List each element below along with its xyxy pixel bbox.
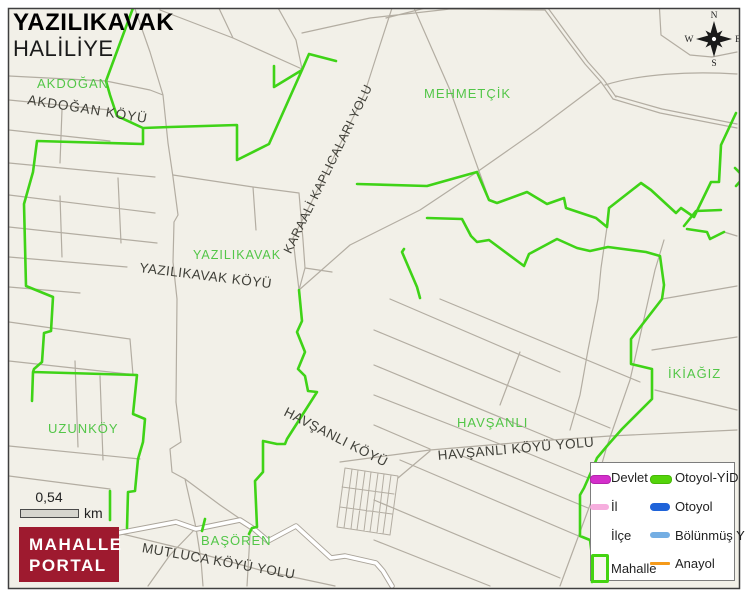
compass-north-label: N (711, 11, 718, 21)
legend-swatch-devlet (590, 475, 611, 484)
legend-label-il: İl (611, 499, 618, 514)
map-export-view: AKDOĞAN AKDOĞAN KÖYÜ MEHMETÇİK KARAALİ K… (0, 0, 748, 598)
legend-swatch-otoyol (650, 503, 670, 511)
scale-unit: km (84, 505, 103, 521)
area-label-ikiagiz: İKİAĞIZ (668, 366, 721, 381)
legend-label-devlet: Devlet (611, 470, 648, 485)
logo-line2: PORTAL (29, 555, 119, 576)
legend-swatch-otoyol-yid (650, 475, 672, 484)
area-label-basoren: BAŞÖREN (201, 533, 272, 548)
compass-south-label: S (711, 59, 716, 69)
legend: Devlet İl İlçe Mahalle Otoyol-YİD Otoyol… (590, 462, 735, 581)
legend-label-ilce: İlçe (611, 528, 631, 543)
legend-swatch-bolunmus (650, 532, 670, 538)
scale-bar-graphic (20, 509, 79, 518)
area-label-akdogan: AKDOĞAN (37, 76, 109, 91)
legend-label-bolunmus: Bölünmüş Y (675, 528, 745, 543)
legend-label-mahalle: Mahalle (611, 561, 657, 576)
legend-swatch-mahalle (591, 554, 609, 583)
mahalle-portal-logo: MAHALLE PORTAL (19, 527, 119, 582)
legend-label-otoyol: Otoyol (675, 499, 713, 514)
area-label-yazilikavak: YAZILIKAVAK (193, 248, 281, 262)
area-label-havsanli: HAVŞANLI (457, 415, 528, 430)
scale-value: 0,54 (24, 489, 74, 505)
logo-line1: MAHALLE (29, 534, 119, 555)
area-label-mehmetcik: MEHMETÇİK (424, 86, 511, 101)
legend-label-otoyol-yid: Otoyol-YİD (675, 470, 739, 485)
compass-west-label: W (685, 35, 694, 45)
legend-label-anayol: Anayol (675, 556, 715, 571)
legend-swatch-il (590, 504, 609, 510)
area-label-uzunkoy: UZUNKÖY (48, 421, 119, 436)
